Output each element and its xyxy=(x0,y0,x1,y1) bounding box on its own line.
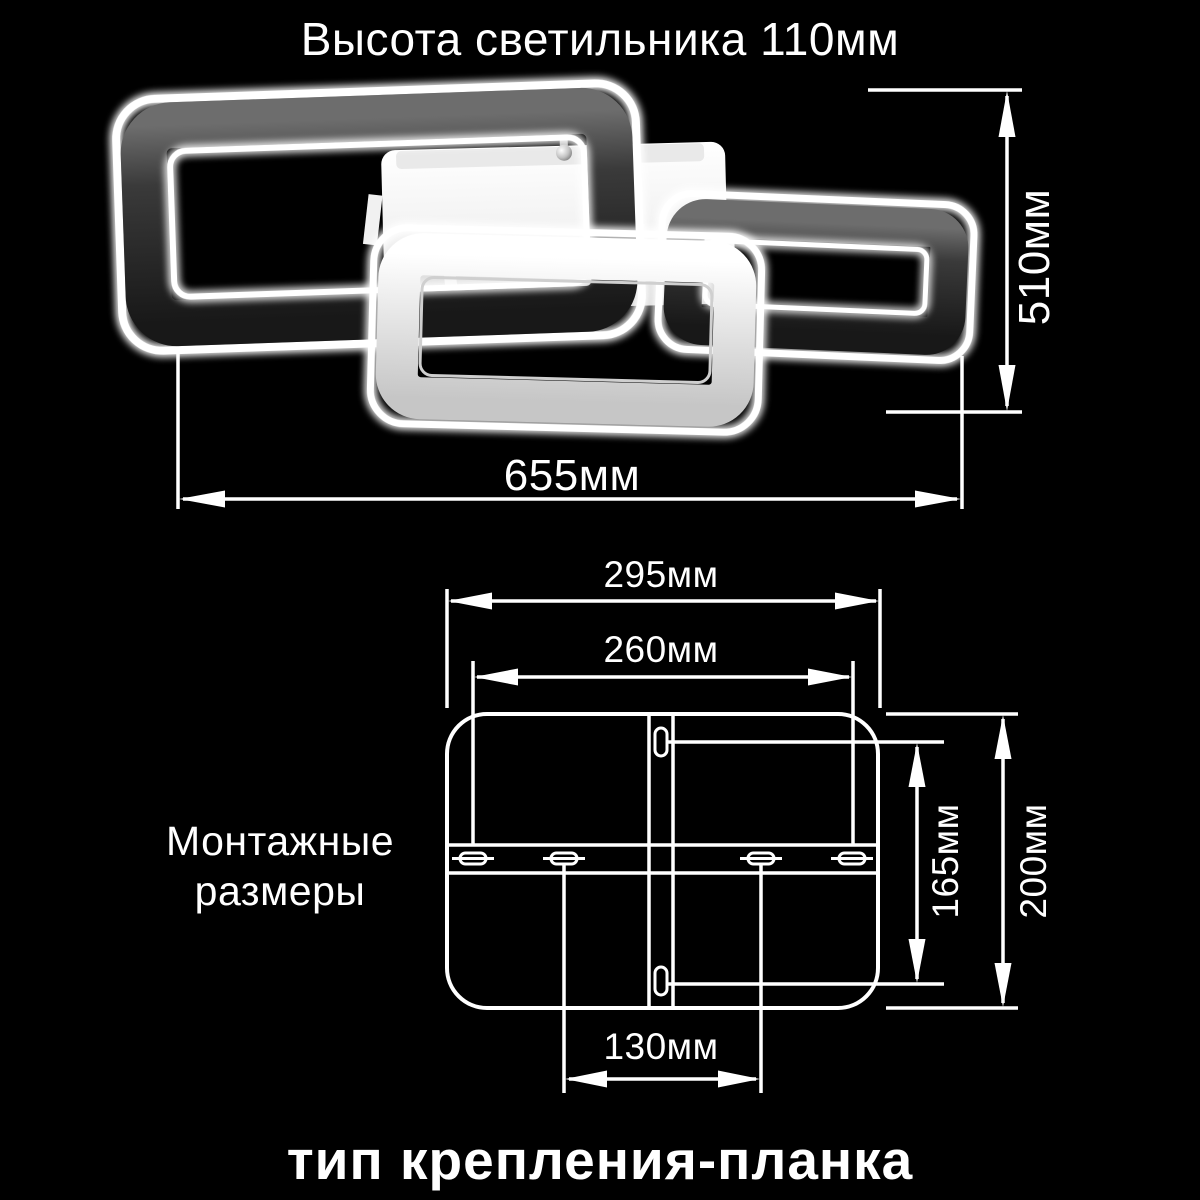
arrowhead-left xyxy=(179,491,225,508)
arrowhead-right xyxy=(718,1071,760,1088)
mounting-heading-line1: Монтажные xyxy=(80,816,480,866)
arrowhead-right xyxy=(915,491,961,508)
arrowhead-down xyxy=(999,365,1016,411)
dimension-label-slot-height: 165мм xyxy=(927,791,965,931)
arrowhead-down xyxy=(909,939,926,983)
arrowhead-up xyxy=(999,91,1016,137)
fixture-photo xyxy=(115,82,975,433)
arrowhead-right xyxy=(808,669,852,686)
mounting-section-heading: Монтажные размеры xyxy=(80,816,480,916)
dimension-label-width: 655мм xyxy=(422,451,722,501)
mounting-plate xyxy=(447,714,878,1008)
dimension-260 xyxy=(473,661,853,844)
arrowhead-left xyxy=(565,1071,607,1088)
mounting-slots-vertical xyxy=(655,728,667,995)
page-title: Высота светильника 110мм xyxy=(0,12,1200,66)
arrowhead-up xyxy=(995,715,1012,759)
dimension-label-plate-height: 200мм xyxy=(1015,791,1053,931)
mounting-slots-horizontal xyxy=(452,853,873,864)
plate-outline xyxy=(447,714,878,1008)
dimension-165 xyxy=(667,742,944,984)
mount-slot xyxy=(655,967,667,995)
dimension-label-plate-width: 295мм xyxy=(511,554,811,596)
product-dimension-diagram: Высота светильника 110мм 510мм 655мм 295… xyxy=(0,0,1200,1200)
arrowhead-right xyxy=(835,593,879,610)
mounting-heading-line2: размеры xyxy=(80,866,480,916)
arrowhead-up xyxy=(909,743,926,787)
dimension-label-slot-span: 260мм xyxy=(511,629,811,671)
mount-type-caption: тип крепления-планка xyxy=(0,1128,1200,1192)
dimension-label-height: 510мм xyxy=(1012,172,1058,342)
dimension-label-center-slots: 130мм xyxy=(511,1026,811,1068)
mount-slot xyxy=(655,728,667,756)
arrowhead-down xyxy=(995,963,1012,1007)
arrowhead-left xyxy=(474,669,518,686)
arrowhead-left xyxy=(448,593,492,610)
